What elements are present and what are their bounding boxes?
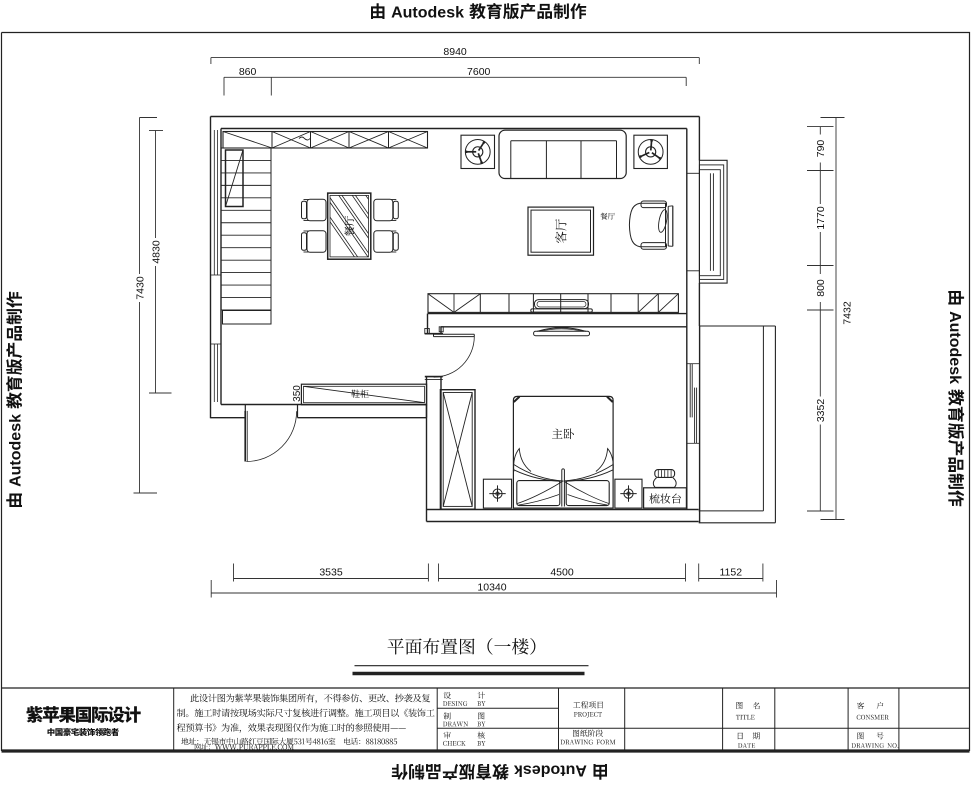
svg-text:7430: 7430: [134, 276, 146, 300]
svg-text:4500: 4500: [550, 567, 574, 579]
svg-text:7432: 7432: [841, 301, 853, 325]
svg-text:8940: 8940: [443, 46, 467, 58]
svg-text:1770: 1770: [815, 206, 827, 230]
svg-text:10340: 10340: [477, 581, 506, 593]
svg-text:790: 790: [815, 140, 827, 158]
svg-text:3535: 3535: [319, 567, 343, 579]
svg-text:3352: 3352: [815, 399, 827, 423]
svg-text:860: 860: [239, 66, 257, 78]
svg-text:800: 800: [815, 279, 827, 297]
svg-text:7600: 7600: [467, 66, 491, 78]
svg-text:1152: 1152: [720, 567, 743, 579]
svg-text:4830: 4830: [150, 240, 162, 264]
